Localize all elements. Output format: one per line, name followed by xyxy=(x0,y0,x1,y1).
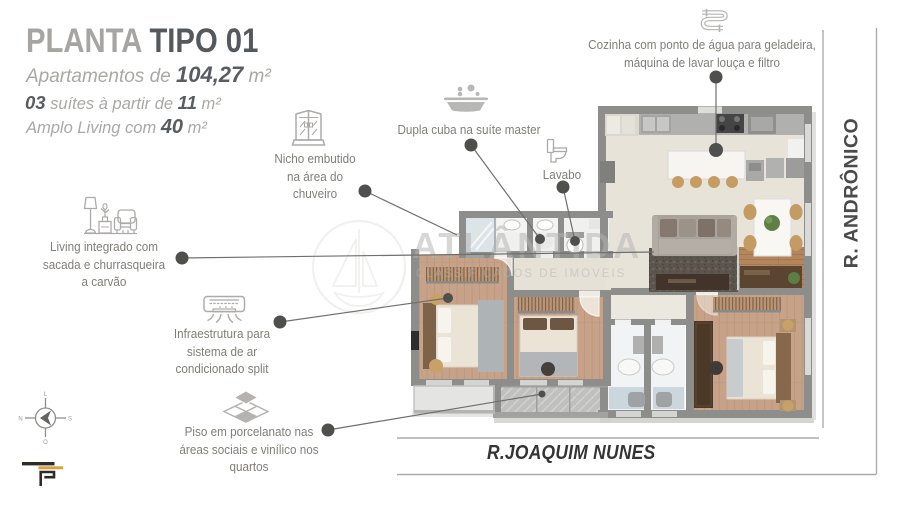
svg-text:N: N xyxy=(18,417,22,423)
svg-text:CLASSIFICADOS DE IMÓVEIS: CLASSIFICADOS DE IMÓVEIS xyxy=(416,267,626,280)
svg-text:S: S xyxy=(68,417,72,423)
svg-text:O: O xyxy=(43,440,48,446)
svg-text:L: L xyxy=(44,392,48,398)
